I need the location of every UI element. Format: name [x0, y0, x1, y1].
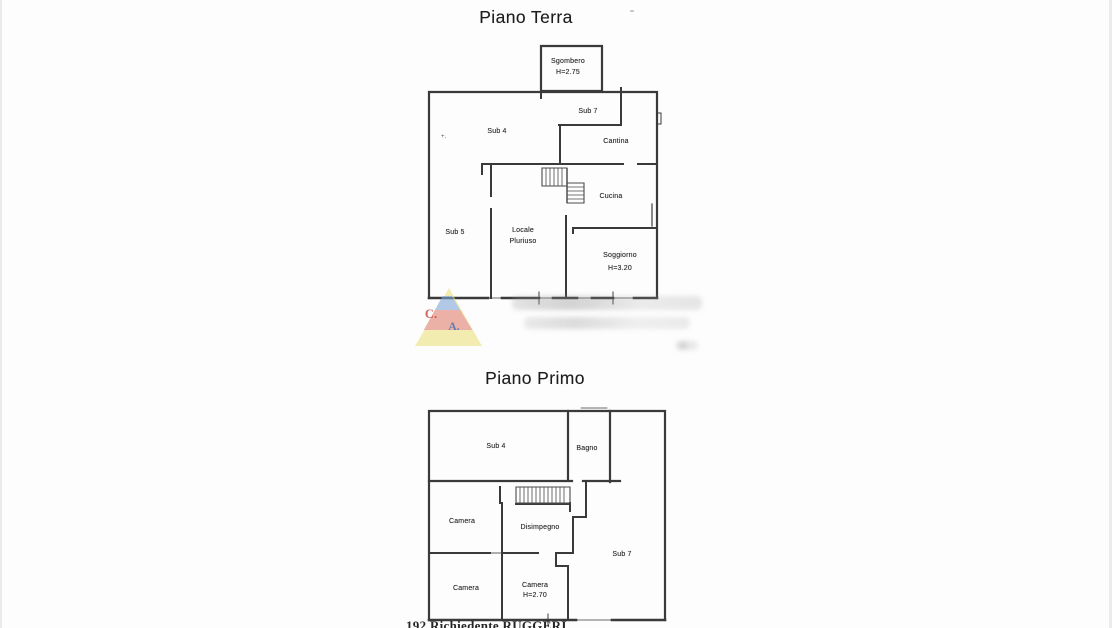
room-name: Sgombero — [551, 58, 585, 65]
floorplan-linework — [0, 0, 1112, 628]
room-label-sub7-terra: Sub 7 — [578, 106, 597, 117]
piano-terra-stairs-icon — [542, 168, 584, 203]
room-name: Camera — [522, 582, 548, 589]
watermark-blur-line-1 — [512, 296, 702, 310]
room-label-locale-pluriuso: Locale Pluriuso — [510, 225, 537, 247]
room-name: Soggiorno — [603, 252, 637, 259]
room-label-sub5: Sub 5 — [445, 227, 464, 238]
piano-primo-stairs-icon — [516, 487, 570, 503]
watermark-blur-line-2 — [524, 317, 690, 329]
room-label-sub4-terra: Sub 4 — [487, 126, 506, 137]
piano-terra-title: Piano Terra — [479, 7, 573, 28]
room-label-sub4-primo: Sub 4 — [486, 441, 505, 452]
watermark-blur-dot — [676, 341, 698, 350]
plan-annotation-mark: +. — [441, 134, 446, 140]
room-label-sub7-primo: Sub 7 — [612, 549, 631, 560]
room-height: H=2.75 — [551, 67, 585, 78]
room-label-bagno: Bagno — [576, 443, 597, 454]
room-height: H=2.70 — [522, 591, 548, 601]
room-label-camera-2: Camera — [453, 583, 479, 594]
room-name-line2: Pluriuso — [510, 236, 537, 247]
room-label-camera-3: Camera H=2.70 — [522, 581, 548, 600]
room-label-cantina: Cantina — [603, 136, 629, 147]
watermark-letter-c: C. — [425, 307, 437, 322]
room-name: Locale — [512, 227, 534, 234]
room-label-sgombero: Sgombero H=2.75 — [551, 56, 585, 78]
watermark-letter-a: A. — [448, 321, 459, 333]
room-label-camera-1: Camera — [449, 516, 475, 527]
room-height: H=3.20 — [603, 262, 637, 275]
scanned-floorplan-page: C. A. Piano Terra Piano Primo Sgombero H… — [0, 0, 1112, 628]
piano-primo-title: Piano Primo — [485, 368, 585, 389]
footer-richiedente-text: 192 Richiedente RUGGERI — [406, 618, 567, 628]
room-label-cucina: Cucina — [600, 191, 623, 202]
room-label-disimpegno: Disimpegno — [521, 522, 560, 533]
room-label-soggiorno: Soggiorno H=3.20 — [603, 249, 637, 275]
